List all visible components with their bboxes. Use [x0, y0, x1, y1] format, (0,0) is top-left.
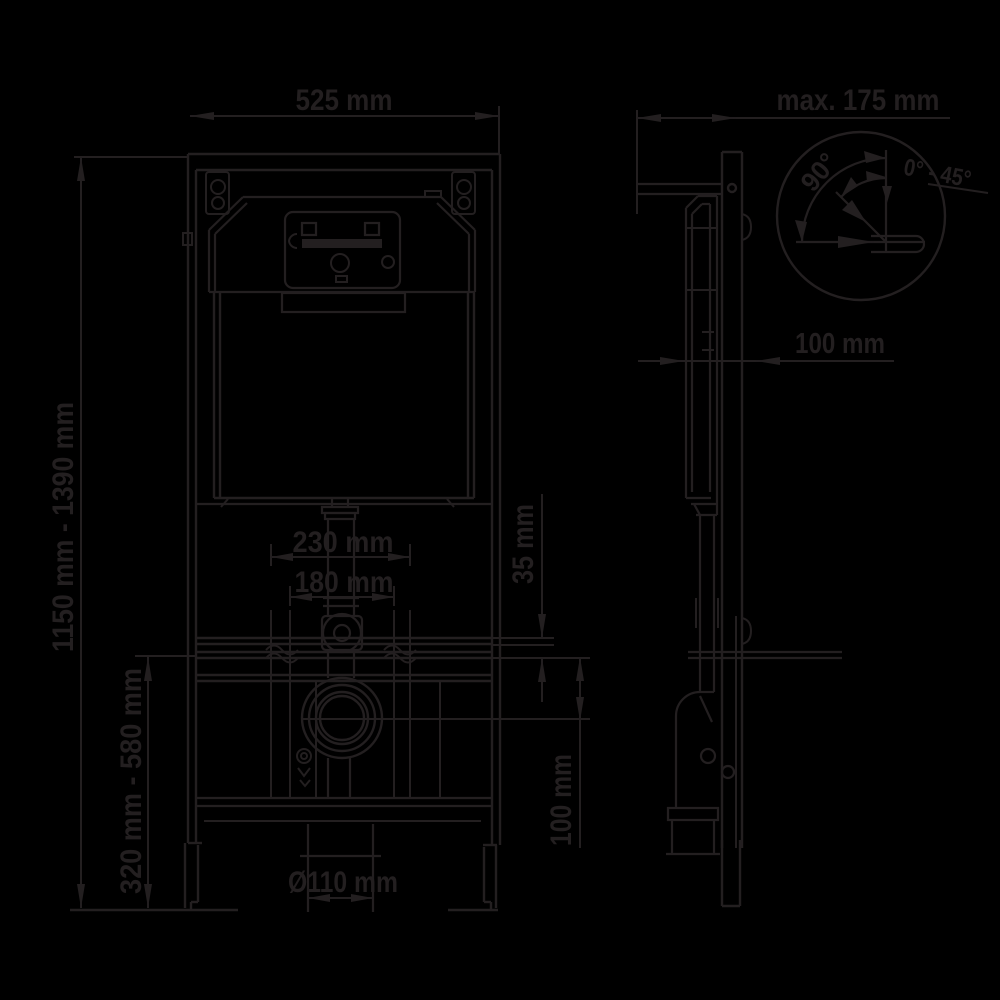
svg-text:Ø110 mm: Ø110 mm [288, 866, 398, 899]
svg-text:1150 mm - 1390 mm: 1150 mm - 1390 mm [47, 402, 80, 652]
svg-text:35 mm: 35 mm [507, 504, 540, 584]
svg-text:100 mm: 100 mm [795, 328, 885, 360]
svg-text:525 mm: 525 mm [296, 84, 393, 117]
svg-text:max. 175 mm: max. 175 mm [777, 84, 940, 117]
svg-text:320 mm - 580 mm: 320 mm - 580 mm [115, 668, 148, 894]
svg-text:230 mm: 230 mm [293, 526, 394, 559]
svg-text:100 mm: 100 mm [545, 754, 578, 846]
